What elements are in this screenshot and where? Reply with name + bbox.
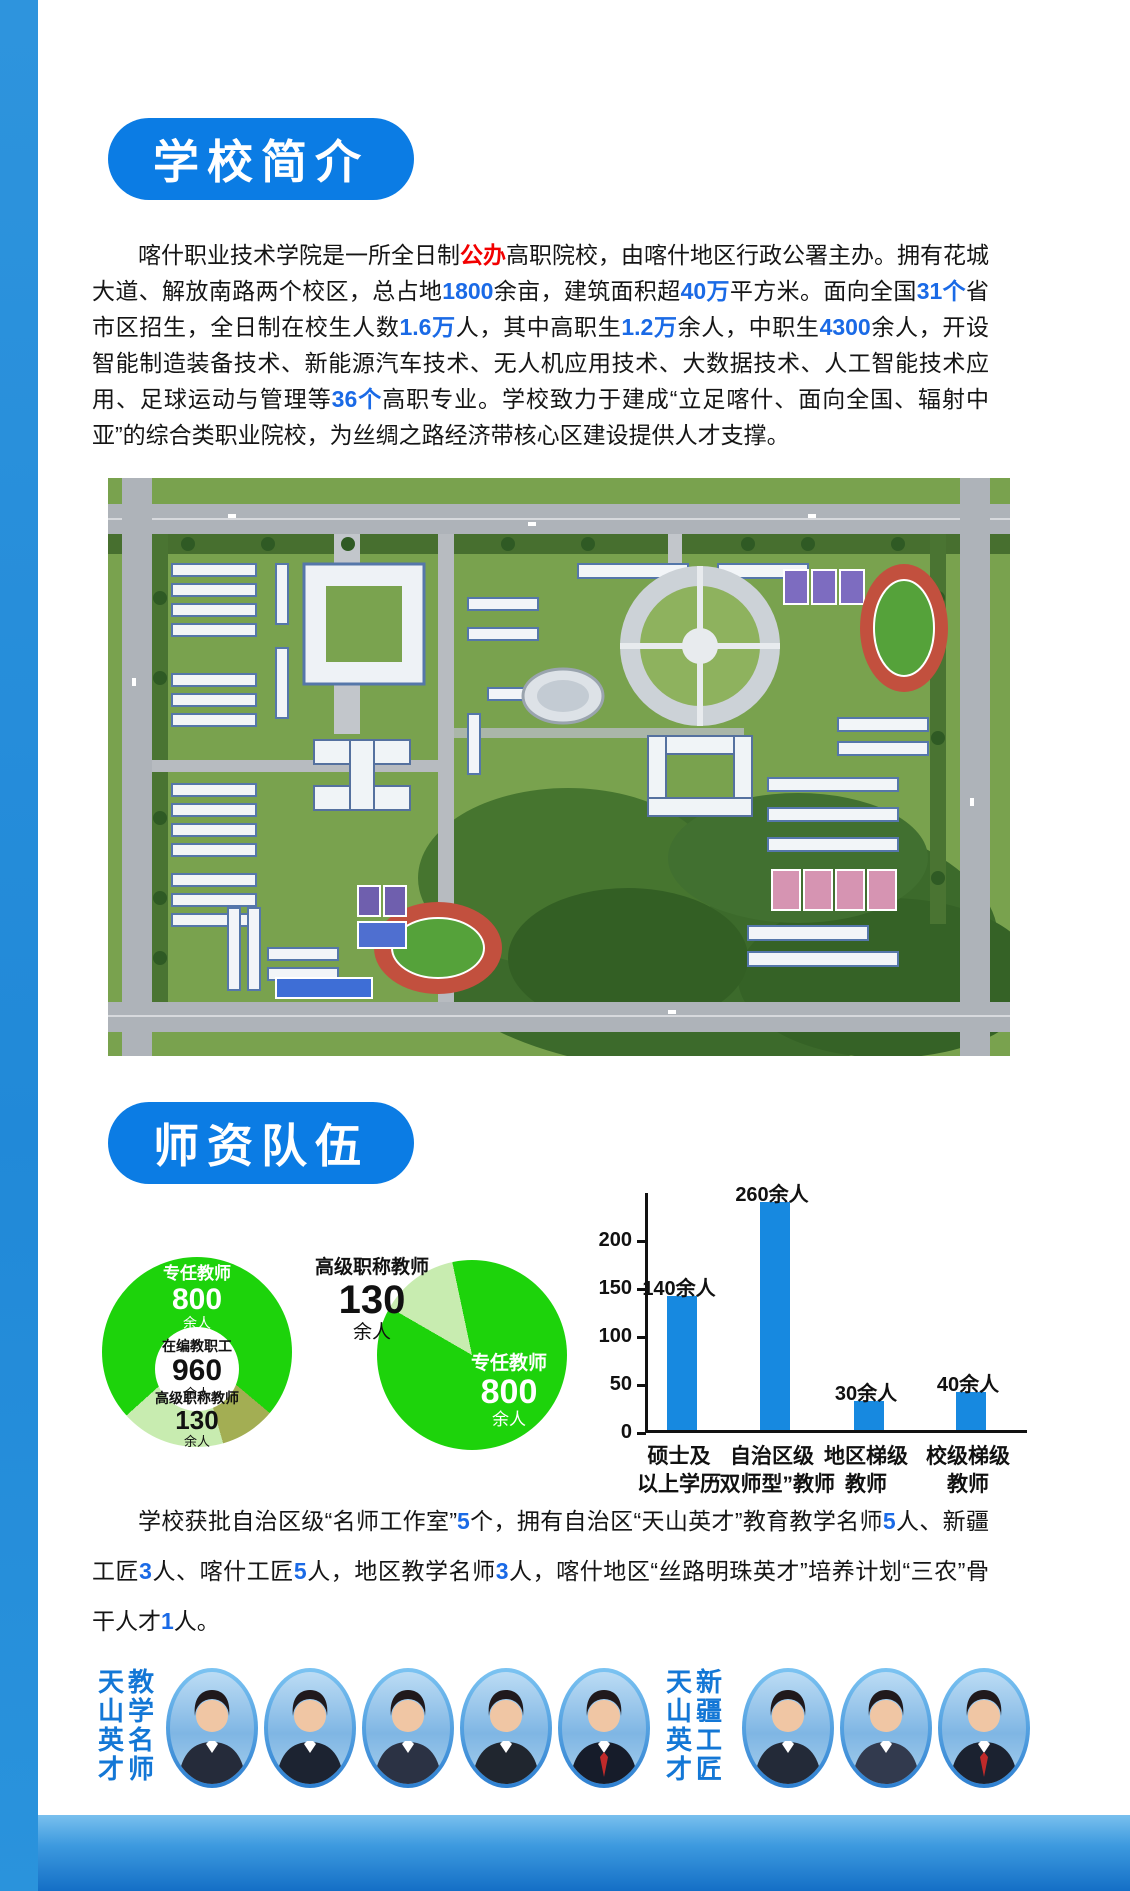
paragraph-text: 个，拥有自治区“天山英才”教育教学名师 bbox=[470, 1508, 883, 1534]
donut-center-value: 960 bbox=[172, 1355, 222, 1386]
donut-bottom-label: 高级职称教师 130 余人 bbox=[102, 1390, 292, 1449]
staff-donut-chart: 专任教师 800 余人 在编教职工 960 余人 高级职称教师 130 余人 bbox=[102, 1257, 292, 1447]
pie-inside-label: 专任教师 800 余人 bbox=[457, 1352, 561, 1430]
paragraph-text: 喀什职业技术学院是一所全日制 bbox=[138, 242, 460, 268]
y-axis-tick bbox=[637, 1240, 646, 1243]
bottom-blue-band bbox=[0, 1815, 1130, 1891]
teacher-photo bbox=[840, 1668, 932, 1788]
teacher-photo bbox=[742, 1668, 834, 1788]
pie-inside-unit: 余人 bbox=[457, 1410, 561, 1430]
campus-aerial-photo bbox=[108, 478, 1010, 1056]
portrait-illustration bbox=[366, 1672, 450, 1784]
pie-outside-label: 高级职称教师 130 余人 bbox=[287, 1256, 457, 1344]
intro-paragraph: 喀什职业技术学院是一所全日制公办高职院校，由喀什地区行政公署主办。拥有花城大道、… bbox=[92, 237, 989, 453]
faculty-paragraph: 学校获批自治区级“名师工作室”5个，拥有自治区“天山英才”教育教学名师5人、新疆… bbox=[92, 1496, 989, 1646]
highlight-number: 40万 bbox=[681, 278, 730, 304]
donut-ring-label: 专任教师 800 余人 bbox=[102, 1263, 292, 1332]
honor-group1-label: 天山英才教学名师 bbox=[96, 1668, 156, 1784]
y-axis-tick bbox=[637, 1384, 646, 1387]
portrait-illustration bbox=[942, 1672, 1026, 1784]
highlight-number: 1800 bbox=[442, 278, 493, 304]
teacher-photo bbox=[362, 1668, 454, 1788]
highlight-number: 36个 bbox=[332, 386, 383, 412]
honor-label-column: 新疆工匠 bbox=[694, 1668, 724, 1784]
bar-0 bbox=[667, 1296, 697, 1430]
bar-value-label: 260余人 bbox=[712, 1178, 832, 1207]
pie-inside-title: 专任教师 bbox=[457, 1352, 561, 1375]
portrait-illustration bbox=[170, 1672, 254, 1784]
section-badge-intro: 学校简介 bbox=[108, 118, 414, 200]
y-axis-tick-label: 200 bbox=[580, 1229, 632, 1252]
paragraph-text: 人。 bbox=[174, 1608, 220, 1634]
portrait-illustration bbox=[746, 1672, 830, 1784]
paragraph-text: 余亩，建筑面积超 bbox=[493, 278, 680, 304]
y-axis-tick-label: 150 bbox=[580, 1277, 632, 1300]
paragraph-text: 人，地区教学名师 bbox=[307, 1558, 496, 1584]
donut-bottom-value: 130 bbox=[102, 1407, 292, 1434]
left-blue-stripe bbox=[0, 0, 38, 1891]
honor-group2-label: 天山英才新疆工匠 bbox=[664, 1668, 724, 1784]
honor-teachers-row: 天山英才教学名师 天山英才新疆工匠 bbox=[96, 1668, 1106, 1788]
y-axis-tick bbox=[637, 1288, 646, 1291]
y-axis-tick-label: 50 bbox=[580, 1373, 632, 1396]
donut-center-title: 在编教职工 bbox=[162, 1338, 232, 1355]
y-axis-tick-label: 100 bbox=[580, 1325, 632, 1348]
pie-outside-value: 130 bbox=[287, 1280, 457, 1321]
paragraph-text: 平方米。面向全国 bbox=[730, 278, 917, 304]
highlight-number: 5 bbox=[883, 1508, 896, 1534]
y-axis-tick bbox=[637, 1432, 646, 1435]
faculty-bar-chart: 140余人硕士及以上学历260余人自治区级“双师型”教师30余人地区梯级教师40… bbox=[580, 1185, 1050, 1510]
portrait-illustration bbox=[562, 1672, 646, 1784]
section-badge-faculty: 师资队伍 bbox=[108, 1102, 414, 1184]
highlight-number: 1.2万 bbox=[621, 314, 677, 340]
highlight-number: 3 bbox=[139, 1558, 152, 1584]
paragraph-text: 人，其中高职生 bbox=[456, 314, 622, 340]
donut-bottom-unit: 余人 bbox=[102, 1434, 292, 1449]
highlight-number: 5 bbox=[294, 1558, 307, 1584]
bar-3 bbox=[956, 1392, 986, 1430]
highlight-number: 4300 bbox=[820, 314, 871, 340]
portrait-illustration bbox=[844, 1672, 928, 1784]
y-axis-tick bbox=[637, 1336, 646, 1339]
highlight-number: 5 bbox=[457, 1508, 470, 1534]
paragraph-text: 余人，中职生 bbox=[678, 314, 820, 340]
honor-label-column: 天山英才 bbox=[96, 1668, 126, 1784]
bar-1 bbox=[760, 1202, 790, 1430]
highlight-number: 1.6万 bbox=[400, 314, 456, 340]
donut-ring-label-title: 专任教师 bbox=[102, 1263, 292, 1284]
pie-outside-title: 高级职称教师 bbox=[287, 1256, 457, 1280]
paragraph-text: 人、喀什工匠 bbox=[152, 1558, 294, 1584]
donut-ring-label-value: 800 bbox=[102, 1284, 292, 1315]
brochure-page: 学校简介 喀什职业技术学院是一所全日制公办高职院校，由喀什地区行政公署主办。拥有… bbox=[0, 0, 1130, 1891]
section-badge-faculty-label: 师资队伍 bbox=[153, 1110, 369, 1176]
teacher-photo bbox=[460, 1668, 552, 1788]
campus-aerial-illustration bbox=[108, 478, 1010, 1056]
portrait-illustration bbox=[464, 1672, 548, 1784]
honor-group2-photos bbox=[742, 1668, 1036, 1788]
y-axis-tick-label: 0 bbox=[580, 1421, 632, 1444]
teacher-photo bbox=[166, 1668, 258, 1788]
highlight-number: 1 bbox=[161, 1608, 174, 1634]
honor-label-column: 天山英才 bbox=[664, 1668, 694, 1784]
teacher-photo bbox=[558, 1668, 650, 1788]
pie-inside-value: 800 bbox=[457, 1375, 561, 1410]
bar-value-label: 140余人 bbox=[619, 1272, 739, 1301]
teacher-photo bbox=[264, 1668, 356, 1788]
honor-label-column: 教学名师 bbox=[126, 1668, 156, 1784]
highlight-number: 31个 bbox=[917, 278, 966, 304]
highlight-number: 3 bbox=[496, 1558, 509, 1584]
highlight-number: 公办 bbox=[460, 242, 506, 268]
pie-outside-unit: 余人 bbox=[287, 1321, 457, 1344]
portrait-illustration bbox=[268, 1672, 352, 1784]
teacher-photo bbox=[938, 1668, 1030, 1788]
section-badge-intro-label: 学校简介 bbox=[153, 126, 369, 192]
paragraph-text: 学校获批自治区级“名师工作室” bbox=[138, 1508, 457, 1534]
bar-category-label: 校级梯级教师 bbox=[883, 1443, 1053, 1499]
honor-group1-photos bbox=[166, 1668, 656, 1788]
bar-value-label: 40余人 bbox=[908, 1368, 1028, 1397]
